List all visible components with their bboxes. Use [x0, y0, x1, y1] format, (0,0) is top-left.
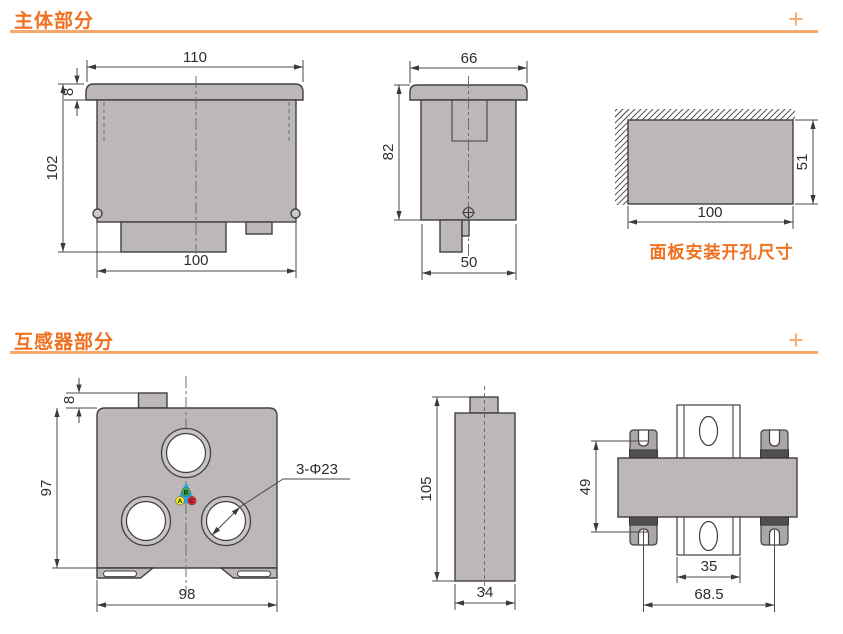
front-bezel	[86, 84, 303, 100]
rail-hole-top	[700, 417, 718, 446]
svg-text:34: 34	[477, 584, 494, 601]
mount-screw-right	[291, 209, 300, 218]
foot-slot-right	[238, 571, 271, 577]
section-title-main-body: 主体部分	[14, 6, 94, 33]
hole-left	[127, 502, 166, 541]
ct-top-body	[618, 458, 797, 517]
clip-top-left	[630, 430, 657, 450]
svg-text:35: 35	[701, 558, 718, 575]
terminal-block	[121, 222, 226, 252]
hole-top	[167, 434, 206, 473]
svg-text:110: 110	[183, 49, 207, 66]
dim-cutout-height: 51	[794, 120, 818, 204]
cutout-rect	[628, 120, 793, 204]
dim-ct-side-width: 34	[455, 584, 515, 610]
drawing-main-front: 110 8 102 100	[40, 45, 330, 290]
svg-text:A: A	[178, 498, 183, 505]
svg-text:100: 100	[183, 252, 208, 269]
mount-screw-left	[93, 209, 102, 218]
foot-slot-left	[104, 571, 137, 577]
svg-text:51: 51	[794, 154, 811, 171]
ct-top-tab	[139, 393, 168, 408]
drawing-ct-front: B A C 8 97 98 3-Φ23	[40, 368, 370, 634]
svg-text:8: 8	[61, 396, 78, 404]
panel-cutout-caption: 面板安装开孔尺寸	[600, 238, 843, 263]
dim-cutout-width: 100	[628, 204, 793, 229]
technical-drawing-page: 主体部分 + 110 8 102	[0, 0, 843, 634]
svg-text:50: 50	[461, 254, 478, 271]
dim-flange-width: 110	[87, 49, 303, 82]
drawing-main-side: 66 82 50	[380, 45, 560, 290]
svg-text:102: 102	[44, 155, 61, 180]
dim-rail-width: 35	[677, 557, 740, 583]
svg-text:105: 105	[418, 476, 435, 501]
section-rule-ct	[10, 351, 818, 354]
svg-text:B: B	[184, 489, 189, 496]
section-rule-main	[10, 30, 818, 33]
svg-text:98: 98	[179, 586, 196, 603]
dim-side-depth: 82	[380, 85, 421, 220]
main-front-shape	[86, 76, 303, 254]
main-side-shape	[410, 76, 527, 256]
svg-text:97: 97	[38, 480, 55, 497]
svg-text:66: 66	[461, 50, 478, 67]
svg-text:C: C	[190, 498, 195, 505]
section-title-ct: 互感器部分	[14, 327, 114, 354]
svg-text:3-Φ23: 3-Φ23	[296, 461, 338, 478]
terminal-tab	[246, 222, 272, 234]
drawing-ct-side: 105 34	[400, 368, 560, 634]
clip-top-right	[761, 430, 788, 450]
dim-ct-width: 98	[97, 580, 277, 612]
plus-icon: +	[788, 327, 804, 354]
svg-text:49: 49	[577, 479, 594, 496]
svg-text:82: 82	[380, 144, 397, 161]
svg-text:68.5: 68.5	[694, 586, 723, 603]
rail-hole-bottom	[700, 522, 718, 551]
svg-text:100: 100	[697, 204, 722, 221]
drawing-ct-top: 49 35 68.5	[585, 368, 843, 634]
plus-icon: +	[788, 6, 804, 33]
side-terminal	[440, 220, 462, 252]
dim-ct-height: 97	[38, 408, 97, 568]
side-terminal-step	[462, 220, 469, 236]
ct-side-shape	[455, 386, 515, 592]
